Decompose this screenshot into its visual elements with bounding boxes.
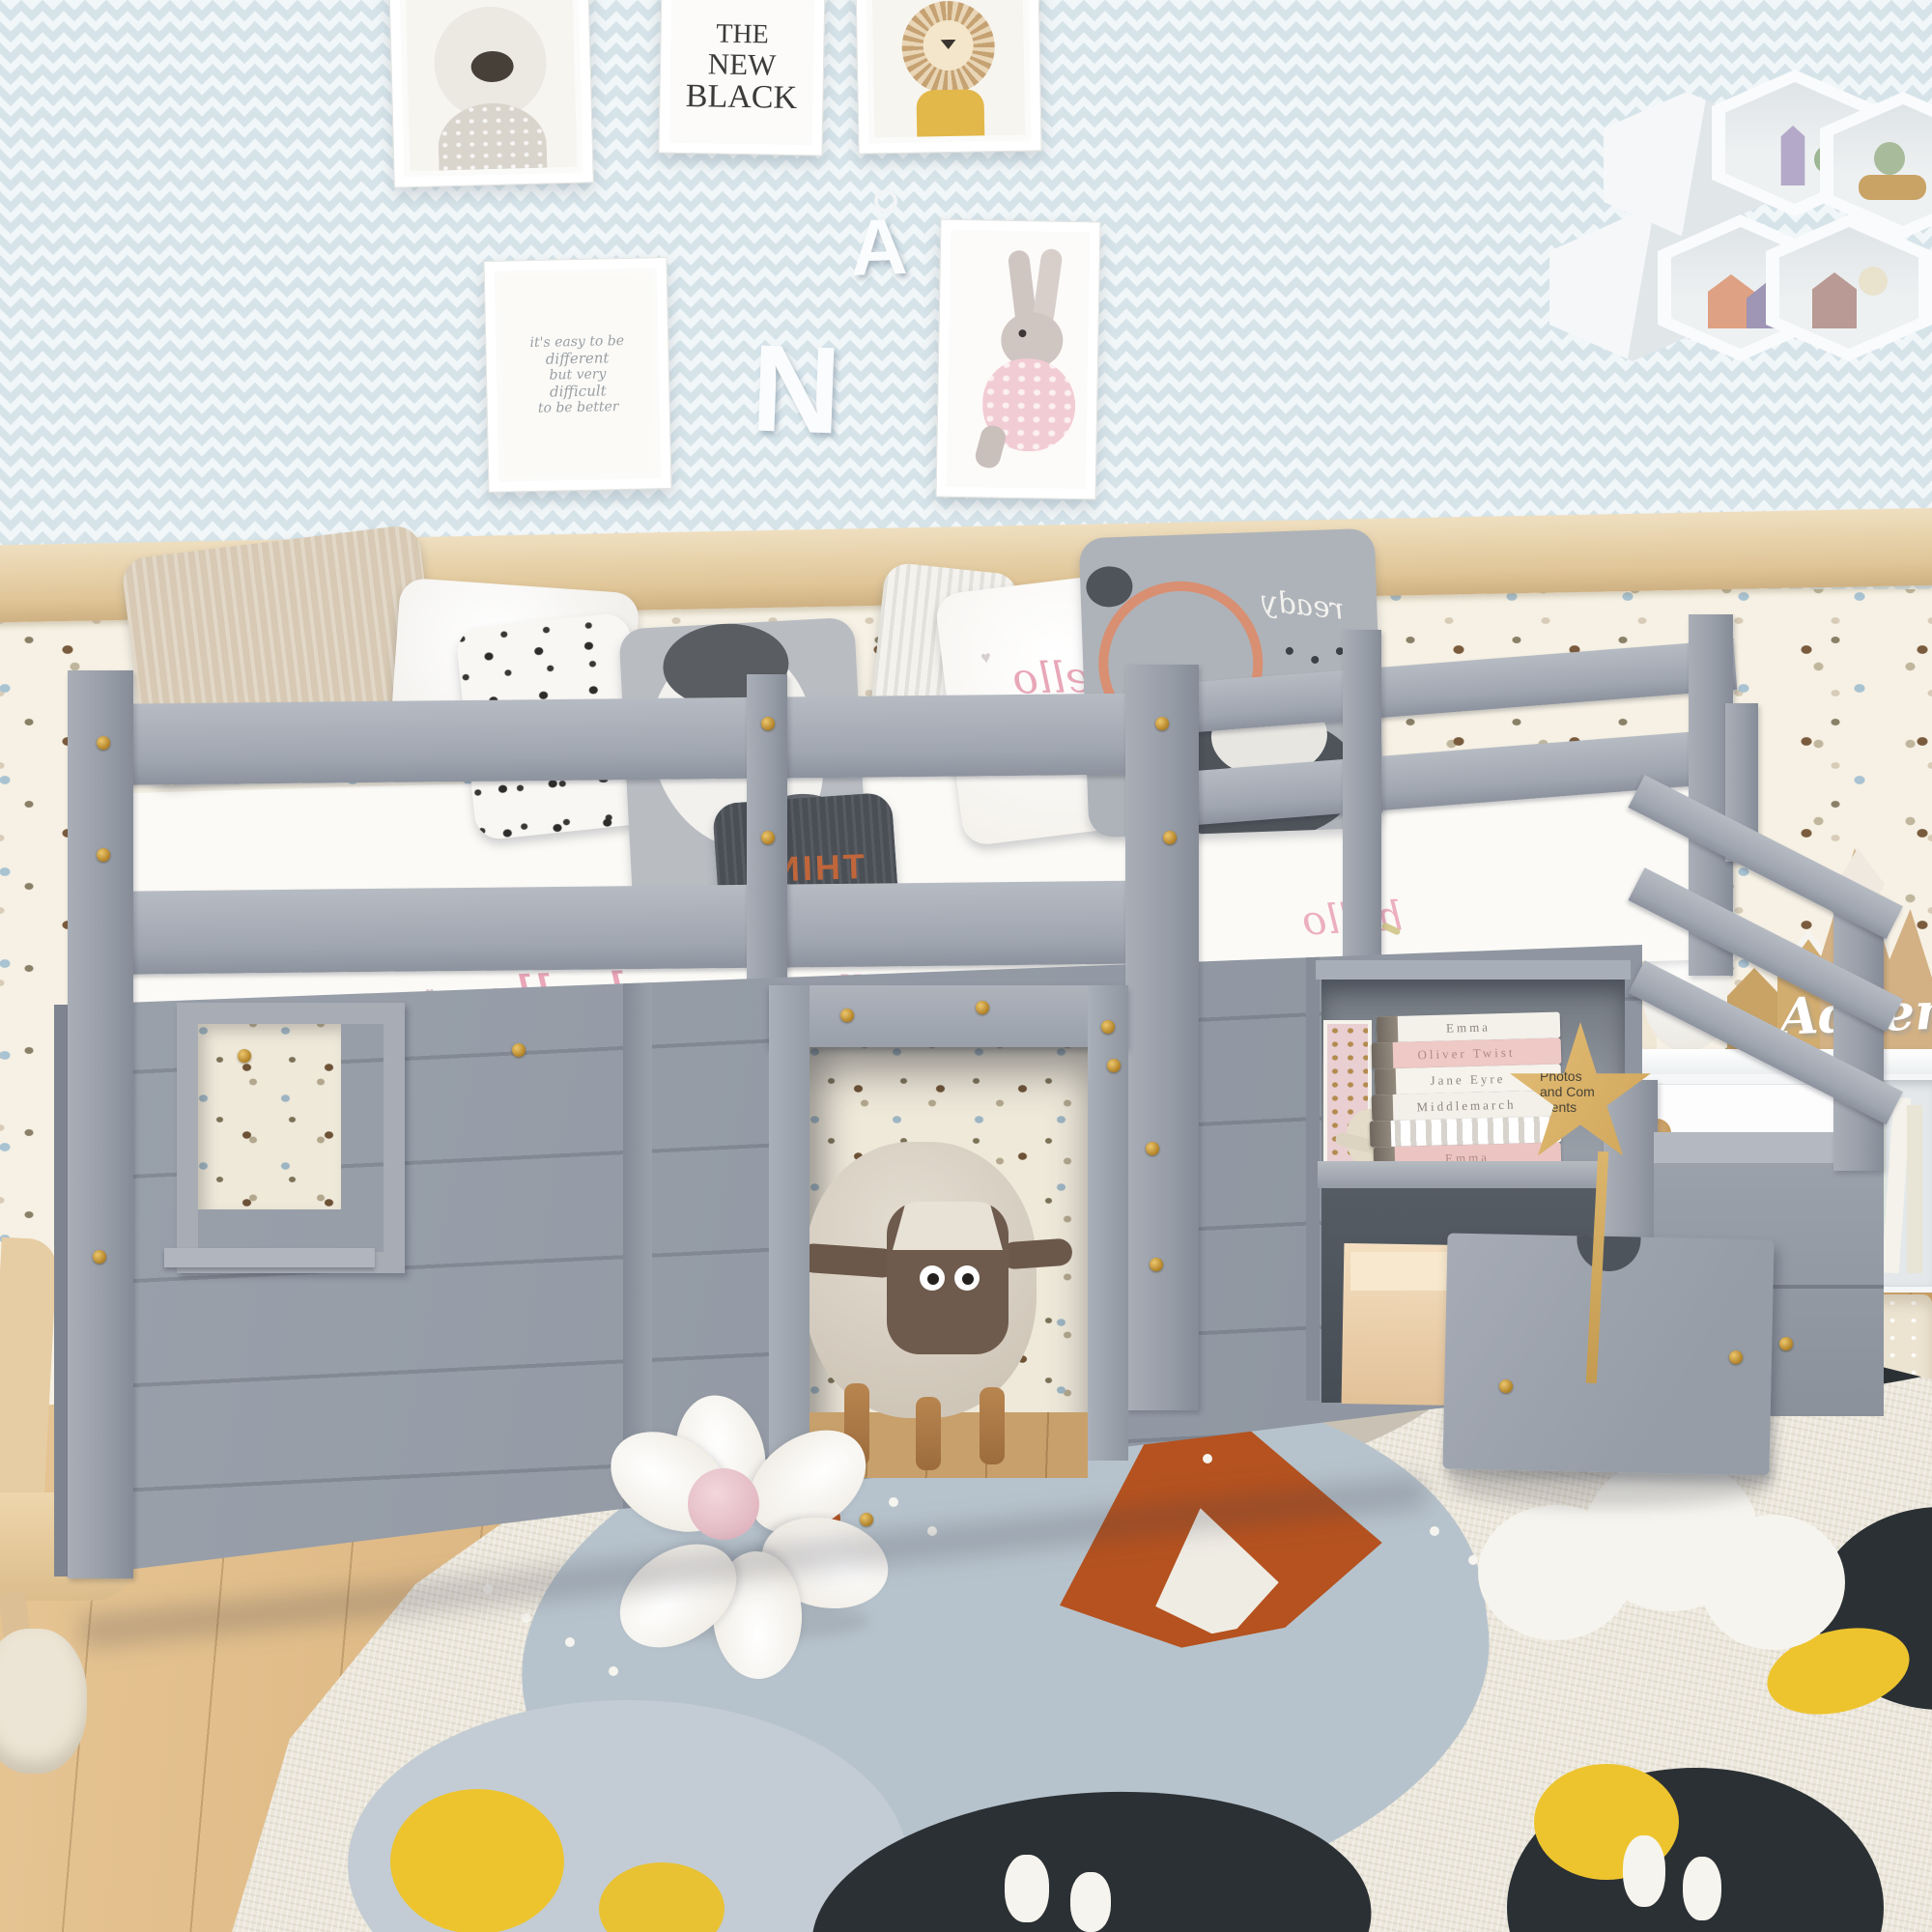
screw [1150,1258,1163,1271]
screw [512,1043,526,1057]
screw [976,1001,989,1014]
front-right-post [1125,665,1199,1410]
front-guard-rail-bottom [129,880,1168,974]
screw [1101,1020,1115,1034]
book-title: Middlemarch [1416,1096,1516,1115]
screw [1155,717,1169,730]
cubby-top-rail [1316,960,1631,980]
screw [840,1009,854,1022]
screw [1729,1350,1743,1364]
quote-line5: to be better [538,399,619,416]
quote-line3: but very [549,366,606,383]
star-text-line2: and Com [1540,1084,1595,1099]
quote-art-frame: it's easy to be different but very diffi… [484,257,672,493]
bear-art [406,0,578,171]
rug-penguin [1623,1835,1665,1907]
book-title: Jane Eyre [1430,1070,1505,1088]
drawer-notch [1577,1236,1641,1271]
rug-yellow-spot [390,1789,564,1932]
sheep-ear [1000,1237,1073,1269]
drawer-front [1442,1233,1774,1475]
sheep-leg [980,1387,1005,1464]
sheep-leg [916,1397,941,1470]
new-black-line2: NEW [707,48,776,81]
house-window [177,1003,405,1273]
screw [97,736,110,750]
screw [1499,1379,1513,1393]
screw [761,831,775,844]
lion-art [872,0,1026,137]
foot-rail-post [1343,630,1381,970]
door-jamb-right [1088,985,1128,1461]
new-black-frame: THE NEW BLACK [658,0,825,156]
new-black-line3: BLACK [686,79,798,116]
decor-letter-n: N [749,317,843,462]
toy-tree-icon [1859,267,1888,296]
flower-center [688,1468,759,1540]
screw [97,848,110,862]
sheep-forehead [893,1202,1003,1250]
screw [1779,1337,1793,1350]
new-black-line1: THE [716,20,769,49]
lion-art-frame [855,0,1041,155]
bear-art-frame [388,0,594,188]
sheep-pupil [927,1273,939,1285]
drawer-box-inner [1350,1252,1451,1291]
screw [1146,1142,1159,1155]
rabbit-art [952,236,1084,483]
door-header-beam [769,985,1128,1047]
decor-letter-a: A [848,202,908,295]
rug-owl [1070,1872,1111,1932]
koala-dots [1286,647,1293,655]
front-guard-rail-top [129,693,1168,784]
quote-line2: different [546,349,610,367]
rabbit-art-frame [935,219,1100,500]
window-sill [164,1248,375,1267]
screw [93,1250,106,1264]
book-title: Emma [1446,1019,1491,1036]
front-left-post [68,670,133,1578]
quote-line1: it's easy to be [529,333,624,351]
screw [860,1513,873,1526]
book-title: Oliver Twist [1417,1044,1515,1063]
cubby-shelf-board [1318,1161,1629,1188]
shelf-book [1907,1105,1922,1273]
door-jamb-left [769,985,810,1482]
screw [761,717,775,730]
koala-text: ready [1260,584,1346,627]
screw [238,1049,251,1063]
stair-newel-post [1833,896,1884,1171]
rug-owl [1005,1855,1049,1922]
rug-penguin [1683,1857,1721,1920]
screw [1107,1059,1121,1072]
toy-tree-icon [1874,142,1905,175]
bedroom-scene: THE NEW BLACK it's easy to be different … [0,0,1932,1932]
quote-line4: difficult [550,382,607,400]
sheep-pupil [962,1273,974,1285]
toy-log-icon [1859,175,1926,200]
screw [1163,831,1177,844]
floor-pouf [0,1629,87,1774]
window-interior [198,1024,341,1209]
lovely-heart: ♥ [980,647,992,668]
